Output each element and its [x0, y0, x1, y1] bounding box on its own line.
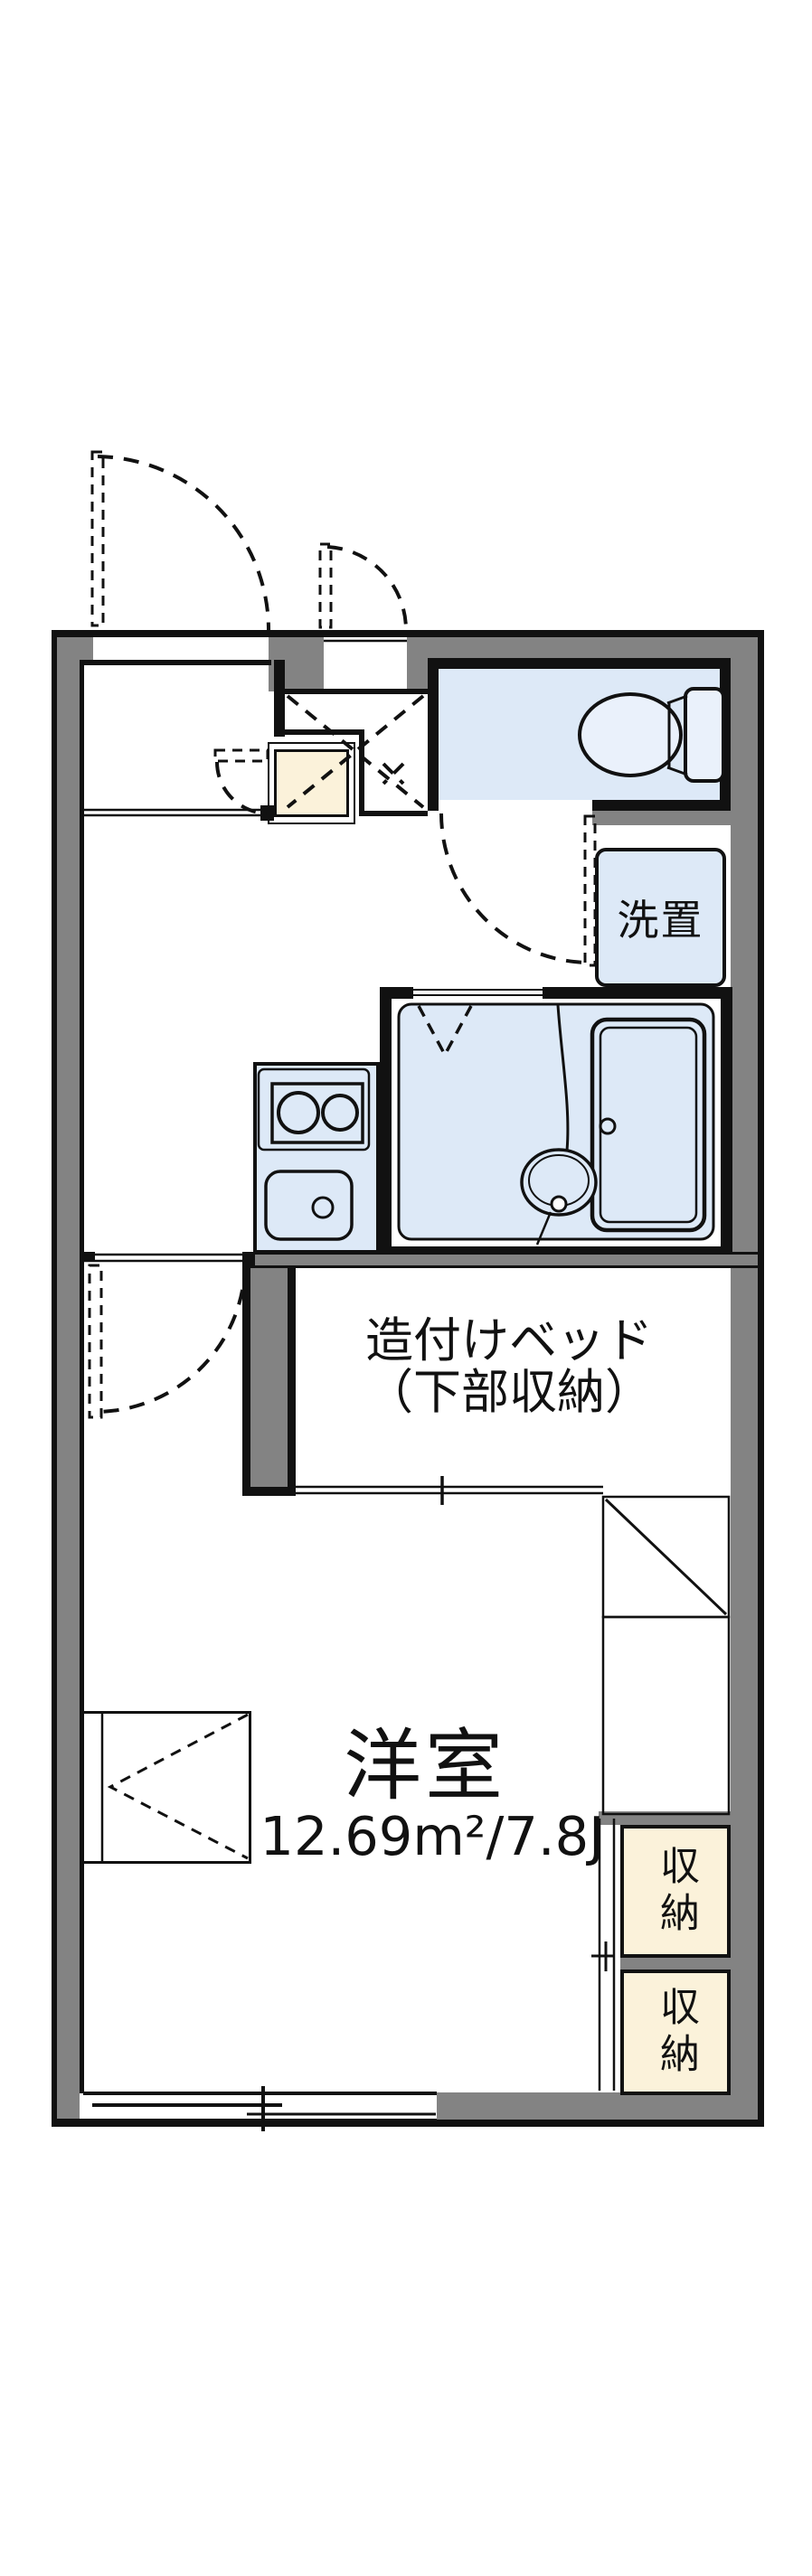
shoe-cabinet-outer-line — [269, 743, 354, 823]
stove-icon — [259, 1069, 369, 1150]
washer-place-label: 洗置 — [595, 848, 726, 987]
room-door-leaf — [90, 1265, 101, 1417]
toilet-icon — [580, 689, 723, 781]
main-room-name-text: 洋室 — [344, 1702, 506, 1815]
toilet-door-arc — [441, 813, 590, 963]
plan-linework — [0, 0, 812, 2576]
entry-door-leaf — [92, 452, 103, 625]
sink-icon — [266, 1171, 352, 1239]
storage-door-arc — [327, 547, 406, 630]
storage-upper-text: 収納 — [656, 1845, 695, 1939]
room-door-arc — [97, 1264, 245, 1412]
main-room-name-label: 洋室 — [298, 1708, 552, 1808]
closet-slider-ticks — [591, 1941, 613, 1971]
storage-door-leaf — [320, 544, 331, 627]
bed-front-slider — [288, 1487, 603, 1493]
main-room-area-label: 12.69m²/7.8J — [242, 1806, 622, 1866]
storage-lower-text: 収納 — [656, 1986, 695, 2080]
free-space-box — [603, 1617, 729, 1814]
genkan-step-line — [84, 810, 262, 815]
built-in-bed-label: 造付けベッド （下部収納） — [328, 1294, 690, 1439]
entry-storage-small-x — [383, 764, 403, 784]
built-in-bed-line2: （下部収納） — [365, 1367, 653, 1418]
shoe-cabinet-door-arc — [217, 762, 269, 813]
storage-entry-window — [324, 635, 407, 641]
shoe-cabinet-door-leaf — [215, 750, 268, 761]
toilet-door-leaf — [585, 816, 595, 965]
refrigerator-space-diagonal — [606, 1500, 726, 1614]
room-door-sill — [84, 1255, 244, 1261]
bay-window-chevron — [110, 1715, 248, 1858]
washer-place-text: 洗置 — [618, 888, 704, 947]
bathtub-icon — [592, 1020, 704, 1230]
main-room-area-text: 12.69m²/7.8J — [260, 1805, 604, 1867]
storage-upper-label: 収納 — [620, 1825, 731, 1958]
entry-door-arc — [98, 456, 269, 630]
balcony-window-icon — [83, 2086, 437, 2131]
bathroom-door-sill — [413, 990, 543, 995]
floor-plan: 洗置 造付けベッド （下部収納） 洋室 12.69m²/7.8J 収納 収納 — [0, 0, 812, 2576]
built-in-bed-line1: 造付けベッド — [365, 1315, 653, 1367]
storage-lower-label: 収納 — [620, 1970, 731, 2095]
